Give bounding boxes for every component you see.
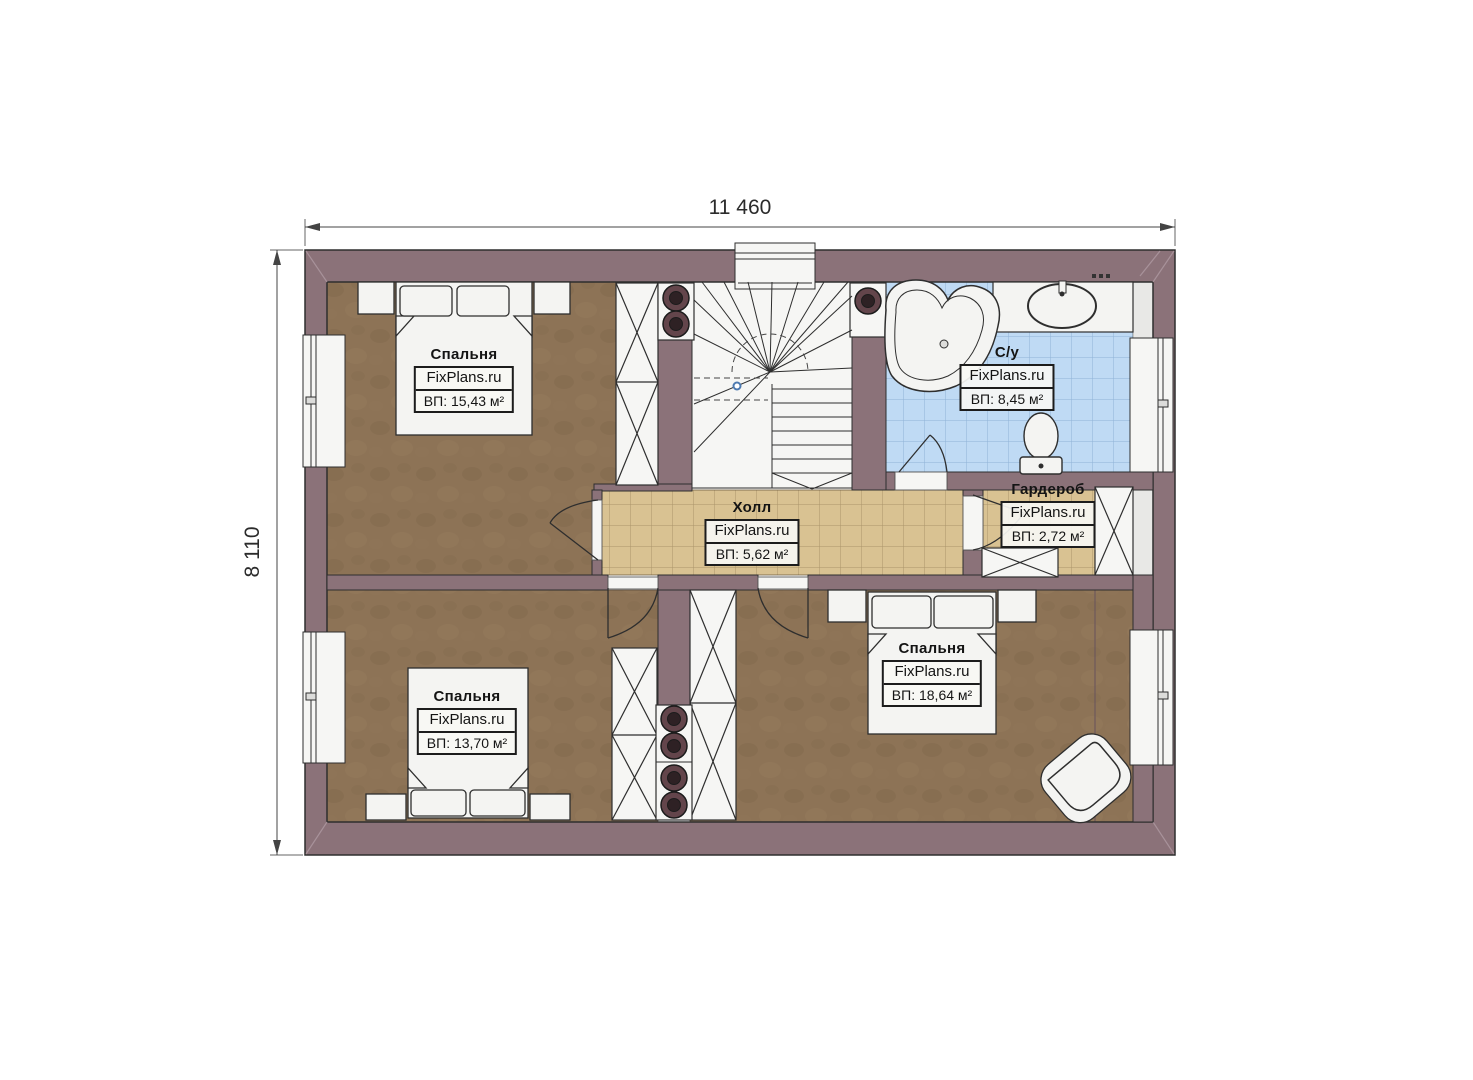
nightstand	[366, 794, 406, 820]
vent-dots	[1092, 274, 1110, 278]
pillow	[470, 790, 525, 816]
bathtub-drain	[940, 340, 948, 348]
wall-center-bottom	[658, 590, 690, 705]
nightstand	[828, 590, 866, 622]
nightstand	[530, 794, 570, 820]
nightstand	[534, 282, 570, 314]
pillow	[400, 286, 452, 316]
nightstand	[998, 590, 1036, 622]
closet-wardrobe-right	[1095, 487, 1133, 575]
wall-mid-b	[658, 575, 758, 590]
closet-top-center	[616, 283, 658, 485]
pillow	[872, 596, 931, 628]
pillow	[934, 596, 993, 628]
flue-box-bottom	[656, 705, 692, 820]
sink-faucet	[1059, 281, 1066, 293]
pillow	[457, 286, 509, 316]
nightstand	[358, 282, 394, 314]
floor-plan-drawing	[0, 0, 1473, 1080]
closet-bottom-left	[612, 648, 657, 820]
wall-bath-bottom-a	[886, 472, 895, 490]
wall-hall-left-b	[592, 560, 602, 575]
window-left-top	[303, 335, 345, 467]
pillow	[411, 790, 466, 816]
window-left-bottom	[303, 632, 345, 763]
floor-plan-page: 11 460 8 110 Спальня FixPlans.ru ВП: 15,…	[0, 0, 1473, 1080]
wall-hall-left-a	[592, 490, 602, 500]
closet-bottom-right	[690, 590, 736, 820]
stair-reference-point	[734, 383, 741, 390]
sink-counter	[993, 281, 1133, 332]
dresser-wardrobe	[982, 548, 1058, 577]
hall-floor	[600, 490, 963, 575]
wall-wardrobe-b	[963, 550, 983, 575]
window-right-bottom	[1130, 630, 1173, 765]
flue-box-top-right	[850, 283, 886, 337]
wall-mid-c	[808, 575, 1153, 590]
flue-box-top-left	[658, 283, 694, 340]
window-top-dormer	[735, 243, 815, 289]
wall-mid-a	[327, 575, 608, 590]
window-right-top	[1130, 338, 1173, 472]
